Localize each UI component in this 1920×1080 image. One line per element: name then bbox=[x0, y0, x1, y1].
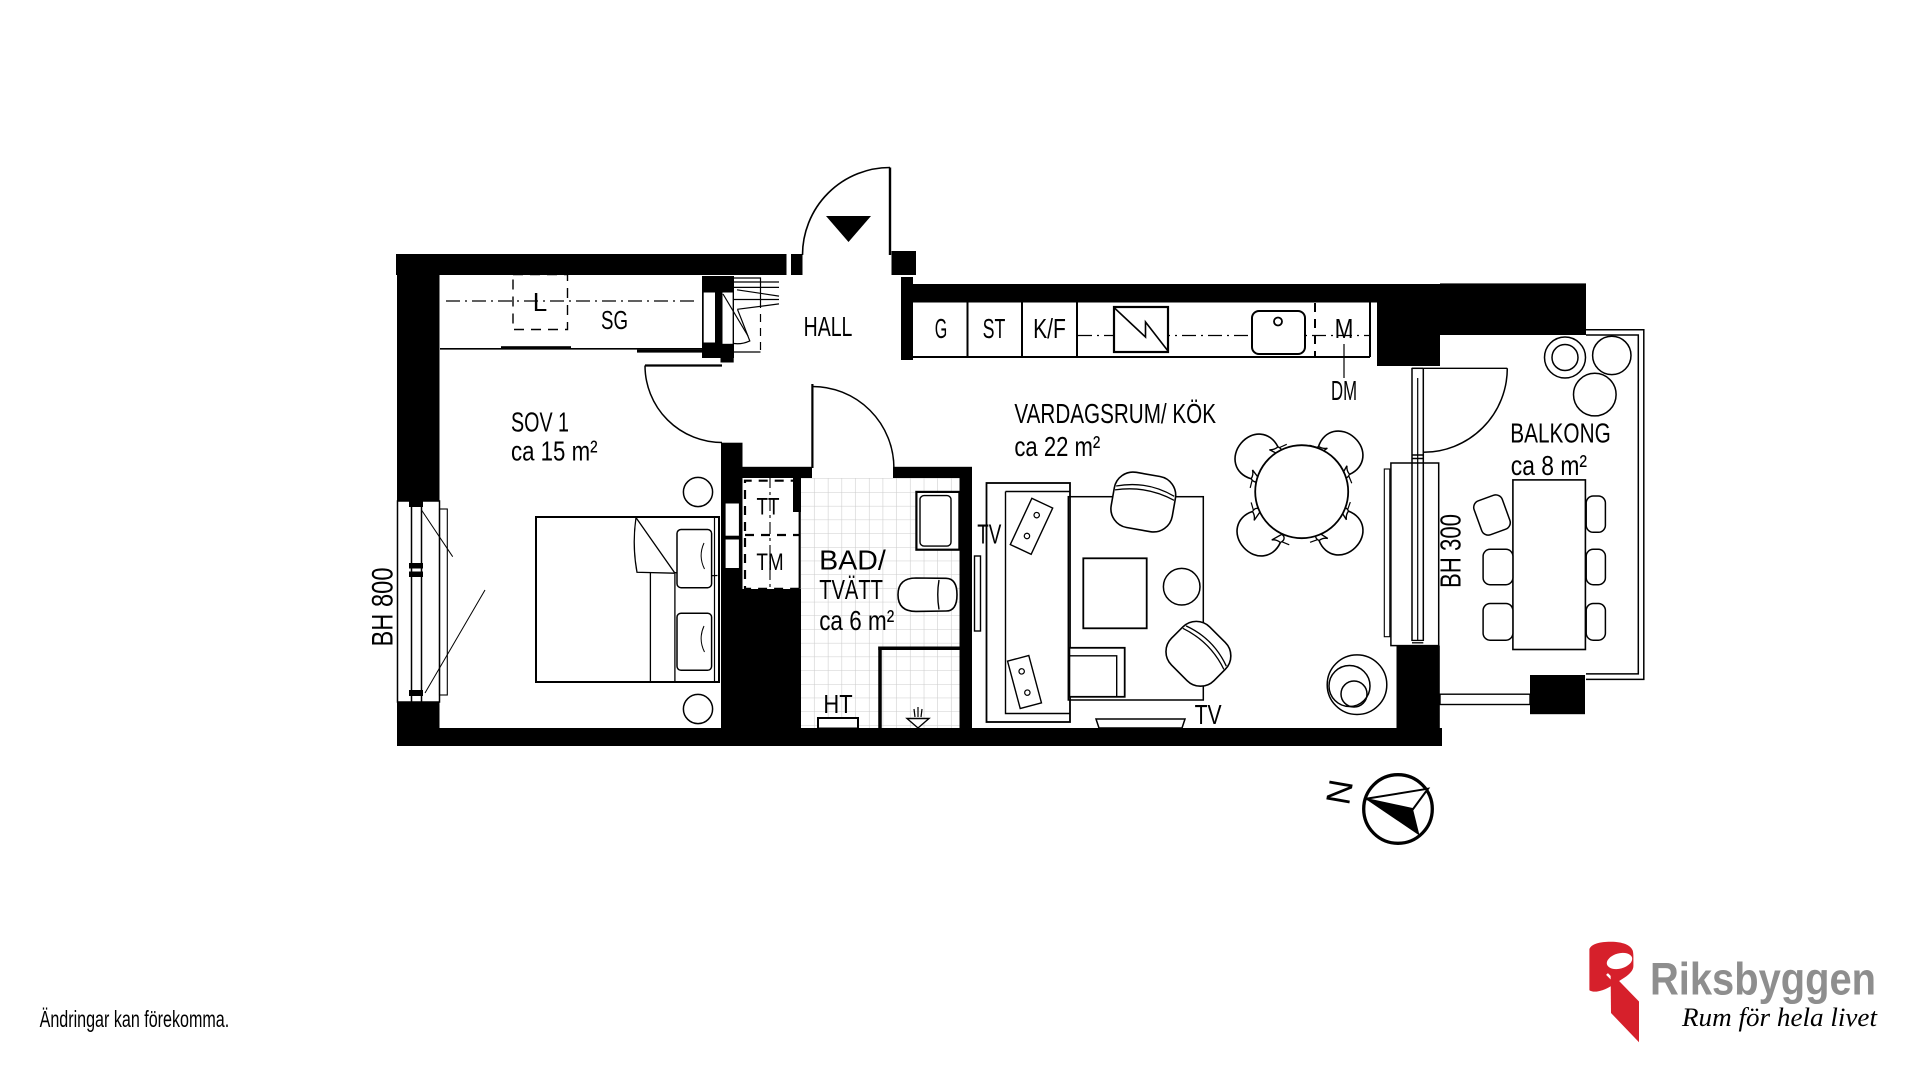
svg-text:BAD/: BAD/ bbox=[819, 545, 886, 576]
svg-text:ca 15 m²: ca 15 m² bbox=[511, 436, 598, 467]
svg-text:VARDAGSRUM/ KÖK: VARDAGSRUM/ KÖK bbox=[1014, 398, 1216, 429]
svg-text:Riksbyggen: Riksbyggen bbox=[1650, 953, 1876, 1004]
svg-text:SOV 1: SOV 1 bbox=[511, 407, 569, 438]
svg-text:M: M bbox=[1335, 313, 1354, 344]
svg-text:ca 6 m²: ca 6 m² bbox=[819, 605, 894, 636]
svg-text:TV: TV bbox=[1195, 699, 1222, 730]
svg-text:HALL: HALL bbox=[804, 311, 853, 342]
svg-text:L: L bbox=[533, 287, 547, 317]
svg-text:TT: TT bbox=[757, 494, 780, 521]
svg-text:BALKONG: BALKONG bbox=[1510, 418, 1611, 449]
svg-text:BH 300: BH 300 bbox=[1436, 514, 1468, 588]
svg-text:Ändringar kan förekomma.: Ändringar kan förekomma. bbox=[40, 1006, 230, 1032]
svg-text:ca 22 m²: ca 22 m² bbox=[1014, 431, 1100, 462]
svg-text:K/F: K/F bbox=[1033, 313, 1066, 344]
svg-text:HT: HT bbox=[823, 689, 852, 719]
svg-text:G: G bbox=[935, 313, 948, 344]
svg-text:Rum för hela livet: Rum för hela livet bbox=[1681, 1003, 1878, 1032]
svg-text:ST: ST bbox=[983, 313, 1006, 344]
svg-text:TV: TV bbox=[977, 519, 1001, 550]
svg-text:BH 800: BH 800 bbox=[367, 568, 400, 647]
svg-text:TVÄTT: TVÄTT bbox=[819, 574, 883, 605]
svg-text:DM: DM bbox=[1331, 375, 1357, 406]
svg-text:TM: TM bbox=[756, 549, 783, 576]
svg-text:SG: SG bbox=[601, 305, 628, 335]
svg-text:ca 8 m²: ca 8 m² bbox=[1511, 450, 1587, 481]
